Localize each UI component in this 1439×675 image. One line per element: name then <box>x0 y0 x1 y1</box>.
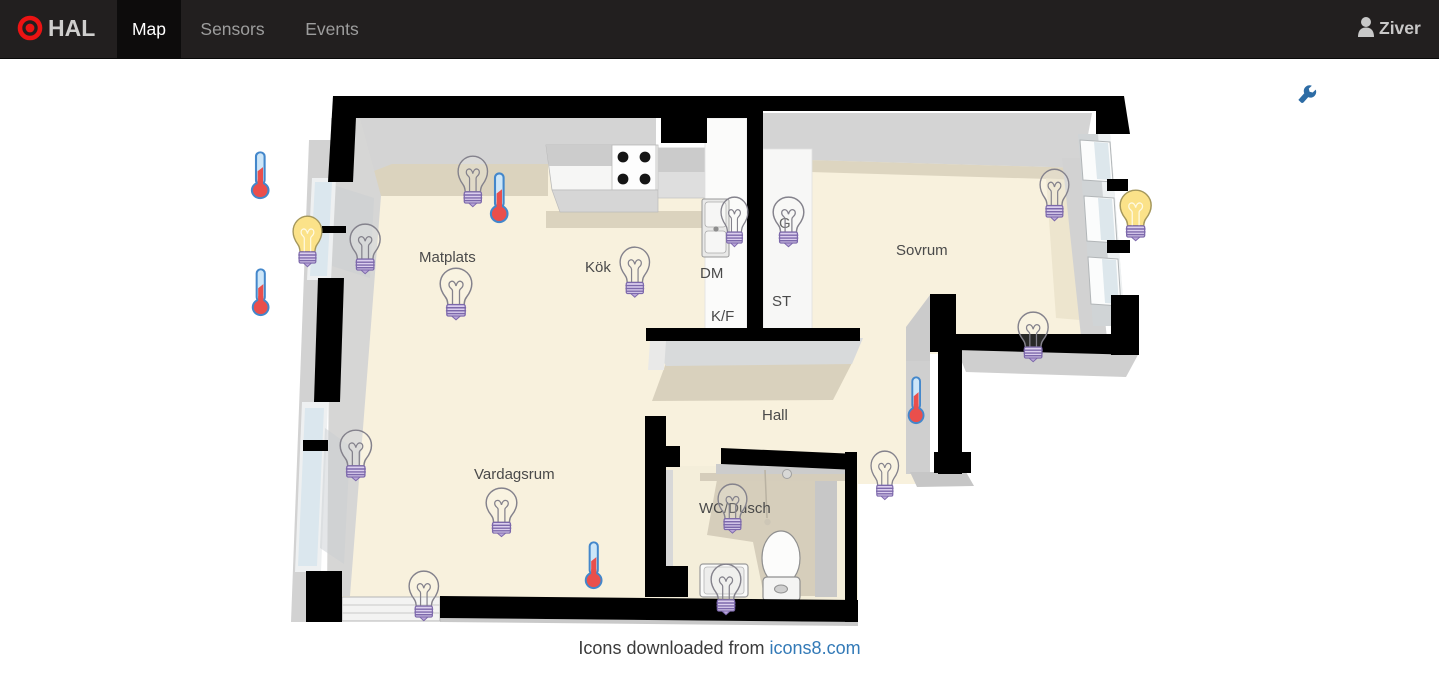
svg-text:ST: ST <box>772 293 791 310</box>
svg-text:DM: DM <box>700 265 723 282</box>
svg-text:Vardagsrum: Vardagsrum <box>474 466 555 483</box>
svg-text:K/F: K/F <box>711 308 734 325</box>
svg-text:Matplats: Matplats <box>419 249 476 266</box>
svg-text:Hall: Hall <box>762 407 788 424</box>
svg-text:Sovrum: Sovrum <box>896 242 948 259</box>
svg-text:Kök: Kök <box>585 259 611 276</box>
